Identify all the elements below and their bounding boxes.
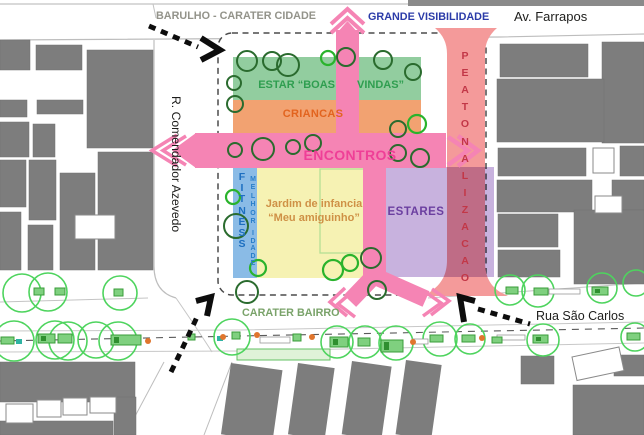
peatonalizacao-label-char: A: [458, 255, 472, 267]
planter: [114, 289, 123, 296]
peatonalizacao-label-char: Z: [458, 204, 472, 216]
building: [408, 0, 644, 6]
planter: [430, 335, 443, 342]
building: [500, 44, 588, 77]
building-outline: [37, 400, 61, 417]
building: [521, 356, 554, 384]
lamp-dot: [479, 335, 485, 341]
label-zone-jardim: Jardim de infancia “Meu amiguinho”: [260, 197, 368, 225]
building: [0, 362, 135, 402]
peatonalizacao-label-char: A: [458, 84, 472, 96]
lamp-dot: [145, 338, 151, 344]
planter: [58, 334, 72, 343]
lamp-dot: [254, 332, 260, 338]
dashed-arrow-head: [196, 297, 211, 316]
idade-label-char: A: [246, 245, 260, 252]
planter-inner: [384, 342, 389, 350]
estares-zone: [386, 167, 494, 277]
building: [0, 160, 26, 207]
peatonalizacao-label-char: N: [458, 136, 472, 148]
planter: [55, 288, 65, 295]
label-zone-criancas: CRIANCAS: [277, 108, 349, 120]
building-outline: [593, 148, 614, 173]
label-grande-visibilidade: GRANDE VISIBILIDADE: [368, 11, 482, 23]
peatonalizacao-label-char: P: [458, 50, 472, 62]
planter-inner: [41, 336, 46, 341]
label-zone-estar-left: ESTAR “BOAS: [245, 79, 335, 91]
building: [114, 397, 136, 435]
lamp-dot: [220, 334, 226, 340]
planter: [534, 288, 548, 295]
dashed-arrow: [478, 309, 530, 324]
building: [498, 148, 586, 176]
lamp-dot: [309, 334, 315, 340]
label-carater-bairro: CARATER BAIRRO: [242, 307, 332, 319]
peatonalizacao-label-char: A: [458, 221, 472, 233]
building: [0, 40, 30, 70]
planter-inner: [595, 289, 600, 293]
idade-label-char: D: [246, 238, 260, 245]
urban-analysis-diagram: BARULHO - CARATER CIDADE GRANDE VISIBILI…: [0, 0, 644, 435]
planter: [293, 334, 301, 341]
idade-label-char: D: [246, 253, 260, 260]
label-rua-comendador-azevedo: R. Comendador Azevedo: [169, 96, 183, 232]
label-zone-encontros: ENCONTROS: [299, 147, 401, 163]
planter: [232, 332, 240, 339]
label-zone-jardim-line1: Jardim de infancia: [260, 197, 368, 211]
dashed-arrow-head: [201, 38, 220, 60]
planter-inner: [333, 339, 338, 345]
peatonalizacao-label-char: I: [458, 187, 472, 199]
street-line: [0, 298, 148, 302]
building: [37, 100, 83, 114]
building: [574, 210, 644, 284]
building: [497, 180, 592, 212]
building: [342, 361, 392, 435]
building: [0, 100, 27, 117]
melhor-label-char: O: [246, 210, 260, 217]
building: [620, 146, 644, 176]
street-tree-icon: [78, 322, 114, 358]
building-outline: [63, 398, 87, 415]
building: [497, 79, 604, 142]
building-outline: [90, 397, 116, 413]
building: [288, 363, 335, 435]
building: [29, 160, 56, 220]
building: [87, 50, 153, 148]
planter: [1, 337, 14, 344]
planter: [34, 288, 44, 295]
melhor-label-char: M: [246, 176, 260, 183]
building: [498, 250, 560, 277]
peatonalizacao-label-char: T: [458, 101, 472, 113]
label-zone-estar-right: VINDAS”: [357, 79, 404, 91]
peatonalizacao-label-char: O: [458, 272, 472, 284]
label-zone-estares: ESTARES: [386, 206, 446, 218]
building-outline: [6, 404, 33, 423]
planter-inner: [114, 337, 119, 343]
building: [498, 214, 558, 247]
planter-inner: [536, 337, 541, 341]
planter: [492, 337, 502, 343]
dashed-arrow: [149, 26, 198, 47]
melhor-label-char: L: [246, 193, 260, 200]
building: [602, 42, 644, 143]
peatonalizacao-label-char: O: [458, 118, 472, 130]
building: [573, 385, 644, 435]
building: [98, 152, 153, 270]
building: [36, 45, 82, 70]
planter: [358, 338, 370, 346]
peatonalizacao-label-char: A: [458, 153, 472, 165]
planter: [38, 334, 55, 343]
grass-strip: [237, 349, 330, 360]
label-rua-sao-carlos: Rua São Carlos: [536, 309, 624, 323]
building: [33, 124, 55, 157]
idade-label-char: E: [246, 260, 260, 267]
building: [396, 360, 442, 435]
dashed-arrow-head: [460, 297, 475, 322]
planter: [627, 333, 640, 340]
dashed-arrow: [171, 317, 197, 372]
planter: [462, 335, 475, 342]
planter: [506, 287, 518, 294]
label-zone-jardim-line2: “Meu amiguinho”: [260, 211, 368, 225]
platform: [549, 289, 580, 294]
label-barulho-carater-cidade: BARULHO - CARATER CIDADE: [156, 10, 302, 22]
building: [0, 122, 29, 157]
building-outline: [595, 196, 622, 213]
label-av-farrapos: Av. Farrapos: [514, 9, 587, 24]
planter: [330, 337, 348, 347]
melhor-label-char: E: [246, 184, 260, 191]
bench: [16, 339, 22, 344]
melhor-label-char: R: [246, 218, 260, 225]
building: [0, 212, 21, 270]
idade-label-char: I: [246, 230, 260, 237]
peatonalizacao-label-char: C: [458, 238, 472, 250]
melhor-label-char: H: [246, 201, 260, 208]
building: [221, 363, 283, 435]
peatonalizacao-label-char: E: [458, 67, 472, 79]
building: [28, 225, 53, 270]
peatonalizacao-label-char: L: [458, 170, 472, 182]
building-outline: [75, 215, 115, 239]
lamp-dot: [410, 339, 416, 345]
platform: [260, 337, 290, 343]
